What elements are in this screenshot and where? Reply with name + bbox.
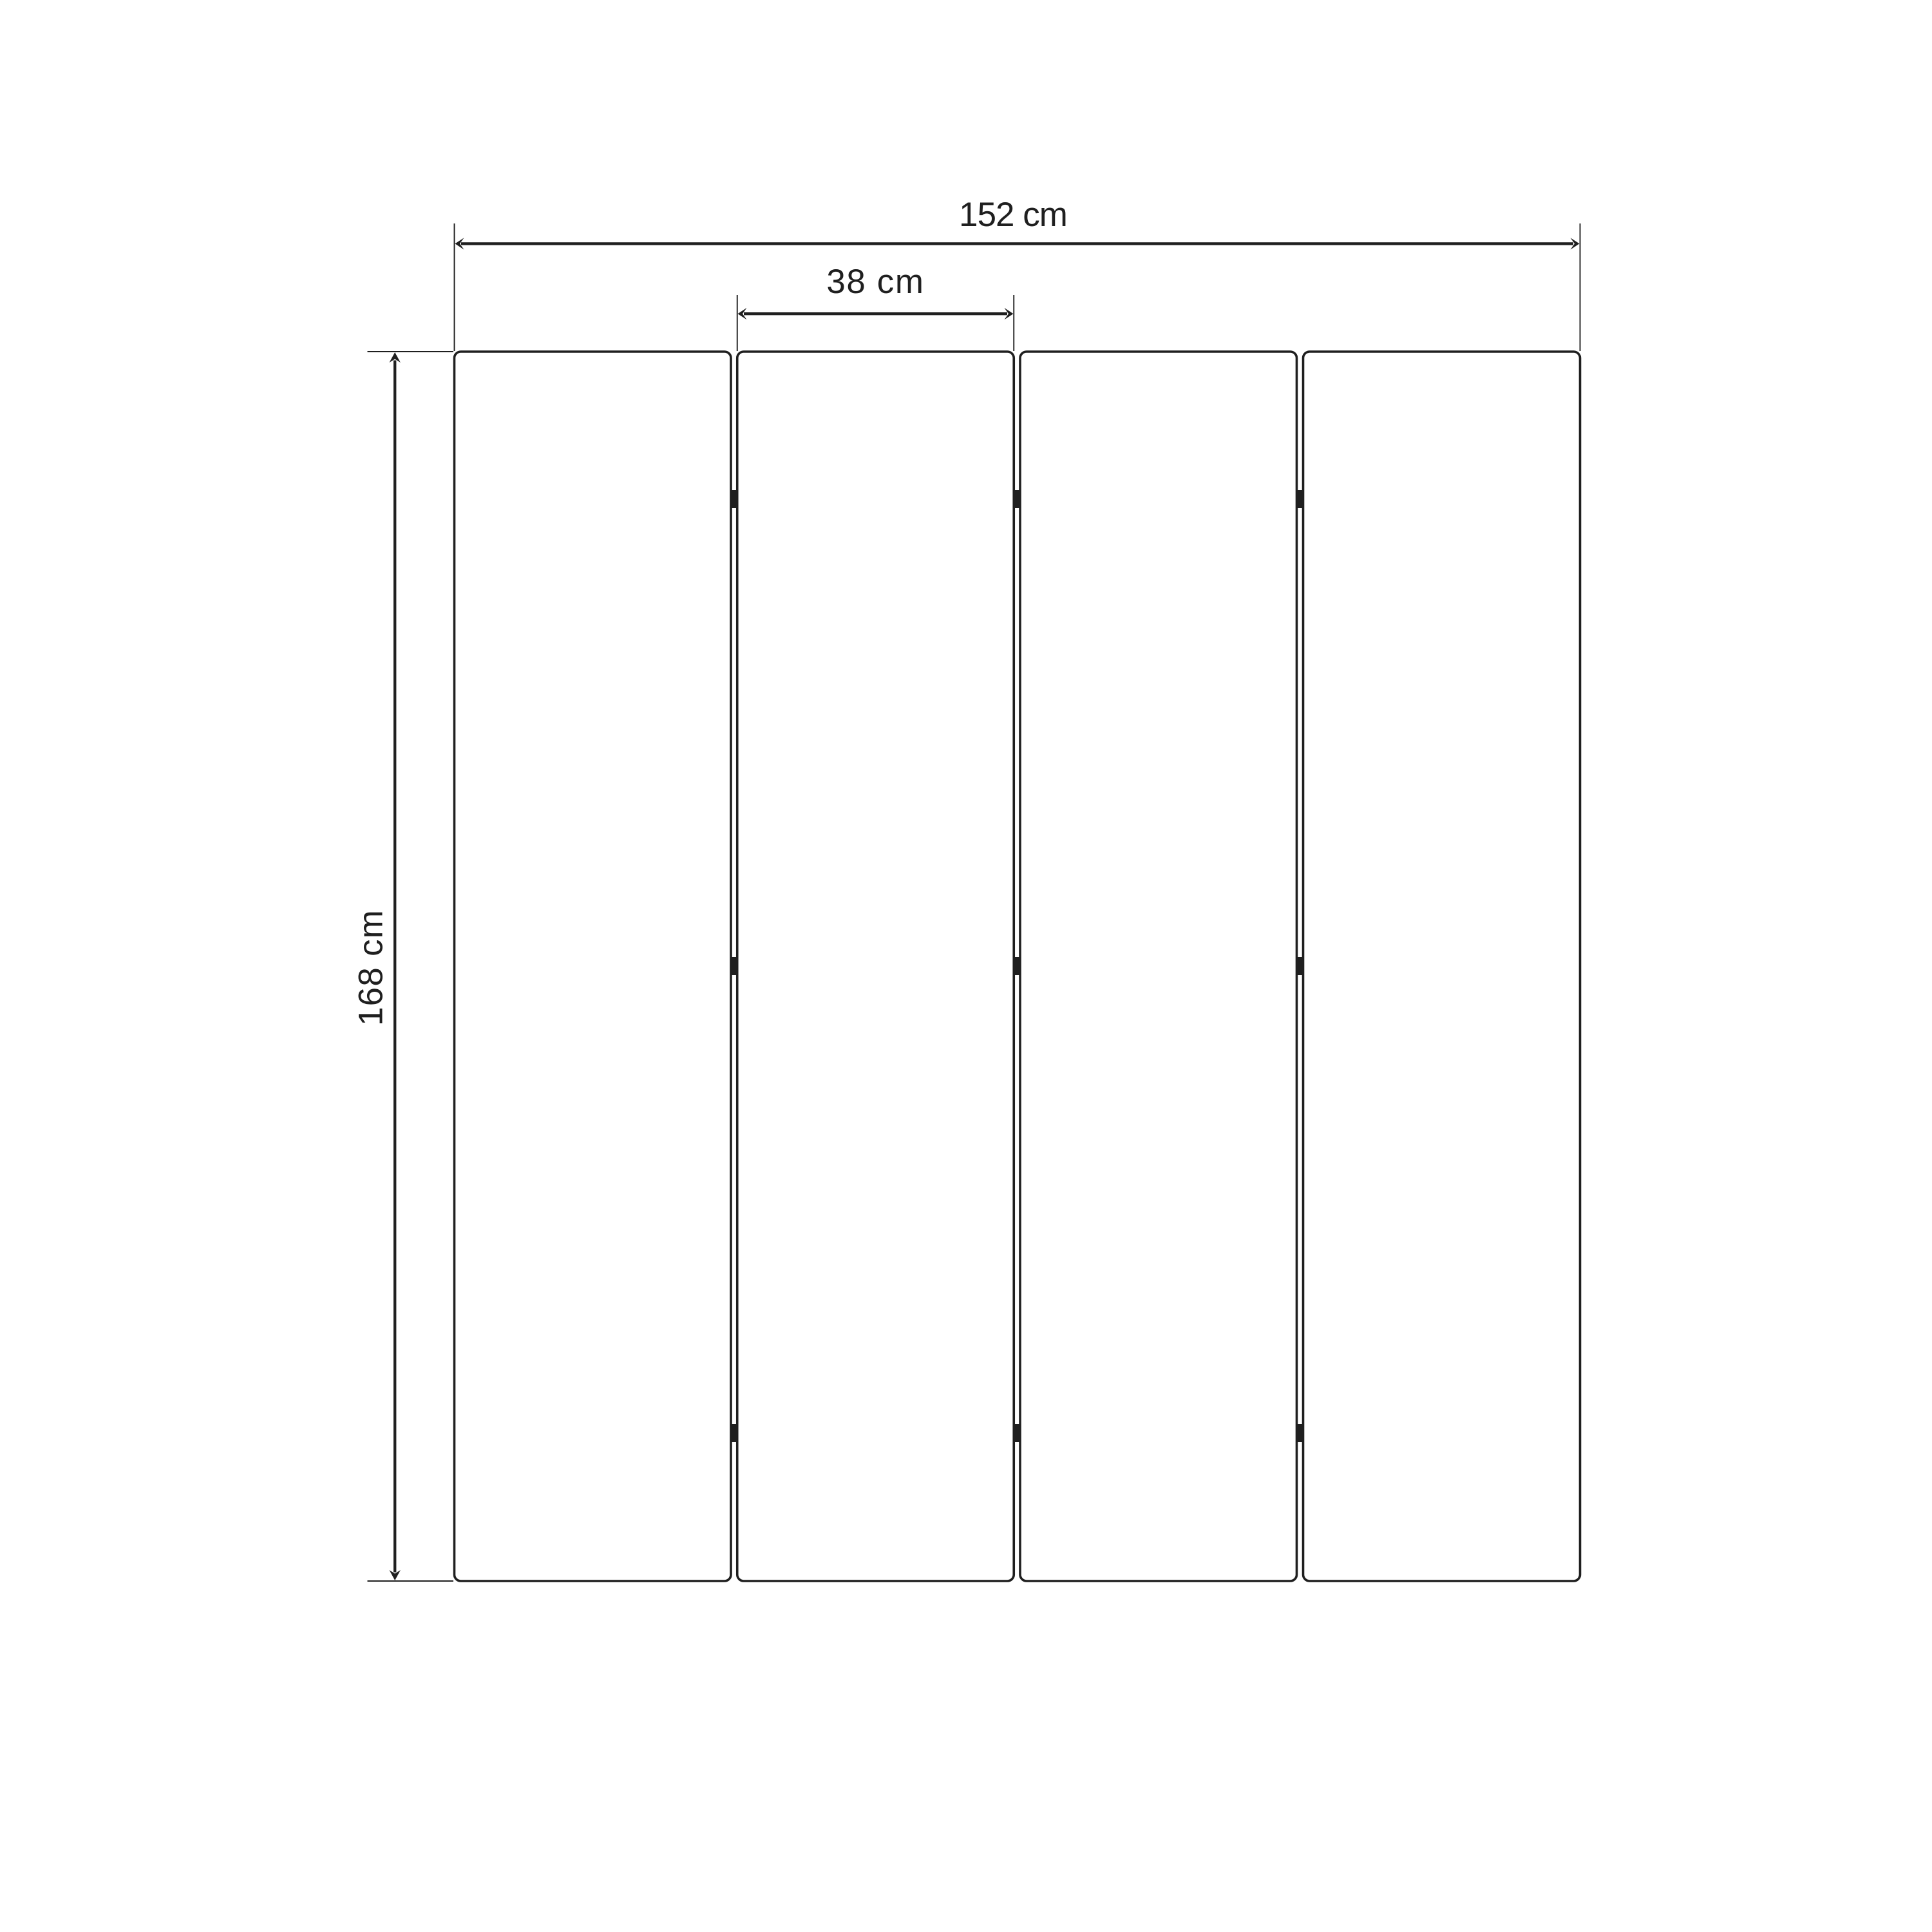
svg-text:168 cm: 168 cm (352, 909, 390, 1026)
svg-text:38 cm: 38 cm (826, 263, 924, 301)
svg-text:152 cm: 152 cm (959, 196, 1067, 234)
